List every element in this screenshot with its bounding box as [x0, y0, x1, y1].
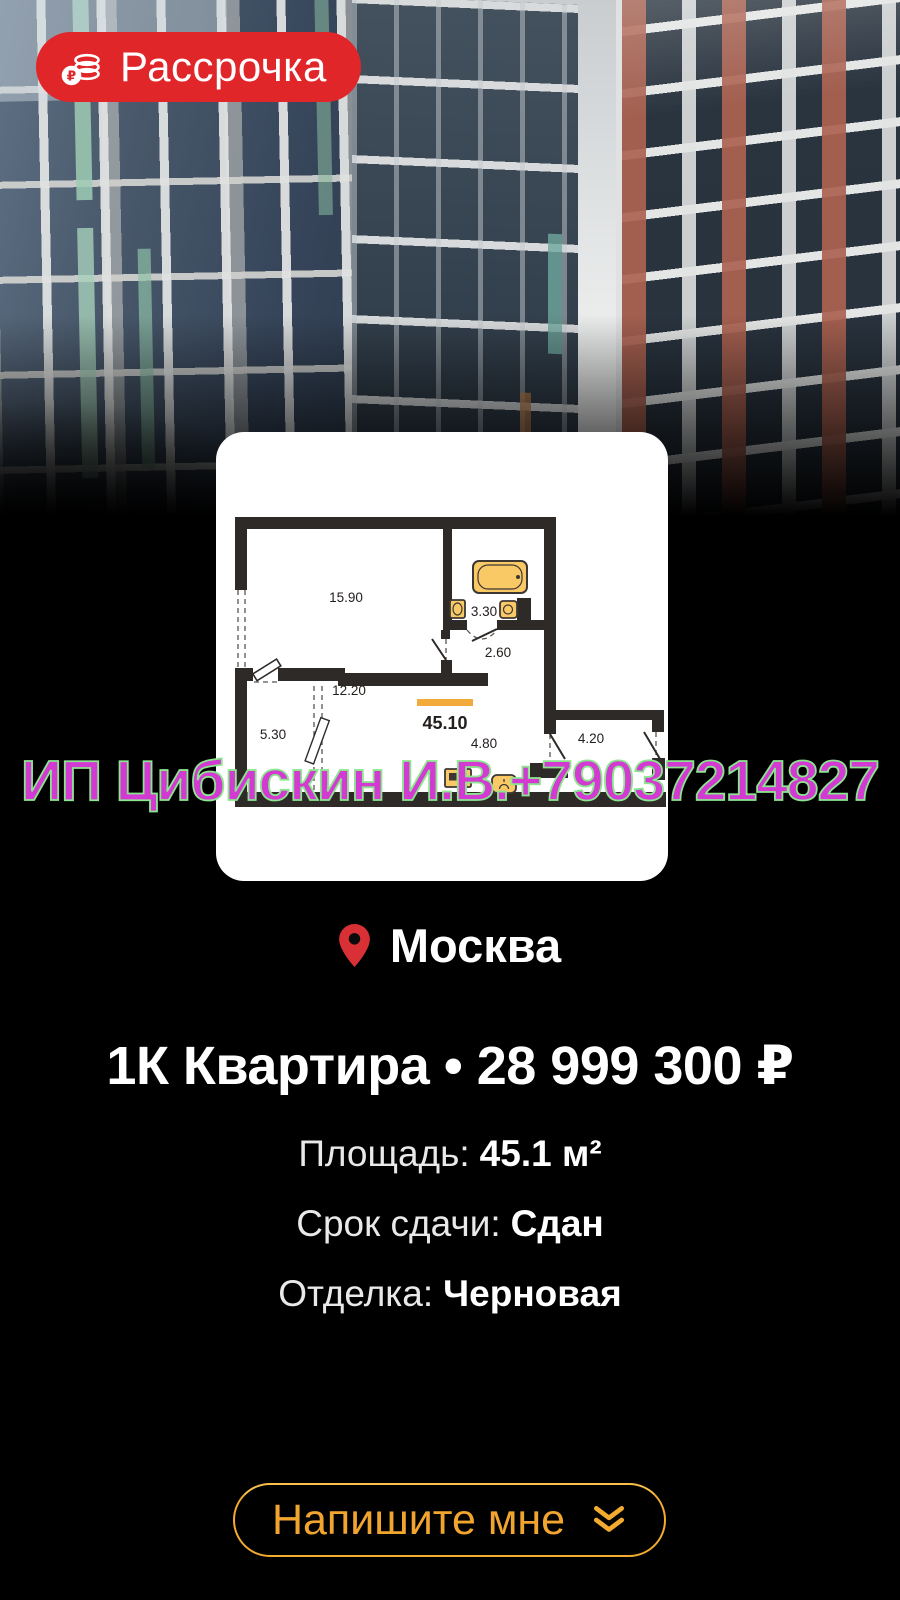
listing-title: 1К Квартира • 28 999 300 ₽	[0, 1034, 900, 1097]
detail-value: Черновая	[443, 1273, 622, 1314]
detail-finishing: Отделка:Черновая	[278, 1273, 621, 1315]
toilet-icon	[500, 601, 517, 618]
detail-value: 45.1 м²	[480, 1133, 602, 1174]
room-area-label: 4.20	[578, 731, 604, 746]
double-chevron-down-icon	[591, 1505, 627, 1535]
room-area-label: 12.20	[332, 683, 366, 698]
room-area-label: 3.30	[471, 604, 497, 619]
balcony-door-leaf	[253, 659, 281, 681]
detail-label: Площадь:	[298, 1133, 469, 1174]
installment-badge: ₽ Рассрочка	[36, 32, 361, 102]
badge-label: Рассрочка	[120, 43, 327, 91]
ruble-coins-icon: ₽	[58, 43, 106, 91]
write-me-button[interactable]: Напишите мне	[233, 1483, 666, 1557]
detail-completion: Срок сдачи:Сдан	[296, 1203, 604, 1245]
total-area-underline	[417, 699, 473, 706]
write-me-label: Напишите мне	[272, 1496, 565, 1545]
map-pin-icon	[339, 924, 370, 967]
location-row: Москва	[0, 918, 900, 973]
agent-watermark: ИП Цибискин И.В.+79037214827	[21, 750, 879, 812]
bathtub-icon	[473, 561, 527, 593]
sink-icon	[450, 600, 465, 618]
svg-text:₽: ₽	[67, 68, 76, 83]
room-area-label: 5.30	[260, 727, 286, 742]
story-screen: ₽ Рассрочка	[0, 0, 900, 1600]
detail-area: Площадь:45.1 м²	[298, 1133, 601, 1175]
detail-value: Сдан	[511, 1203, 604, 1244]
total-area-label: 45.10	[422, 713, 467, 733]
listing-details: Площадь:45.1 м² Срок сдачи:Сдан Отделка:…	[0, 1133, 900, 1315]
detail-label: Отделка:	[278, 1273, 433, 1314]
floor-plan: 15.90 3.30 2.60 12.20 45.10 4.80 4.20 5.…	[216, 432, 668, 881]
room-area-label: 2.60	[485, 645, 511, 660]
room-area-label: 15.90	[329, 590, 363, 605]
detail-label: Срок сдачи:	[296, 1203, 500, 1244]
city-label: Москва	[390, 918, 561, 973]
floor-plan-card: 15.90 3.30 2.60 12.20 45.10 4.80 4.20 5.…	[216, 432, 668, 881]
